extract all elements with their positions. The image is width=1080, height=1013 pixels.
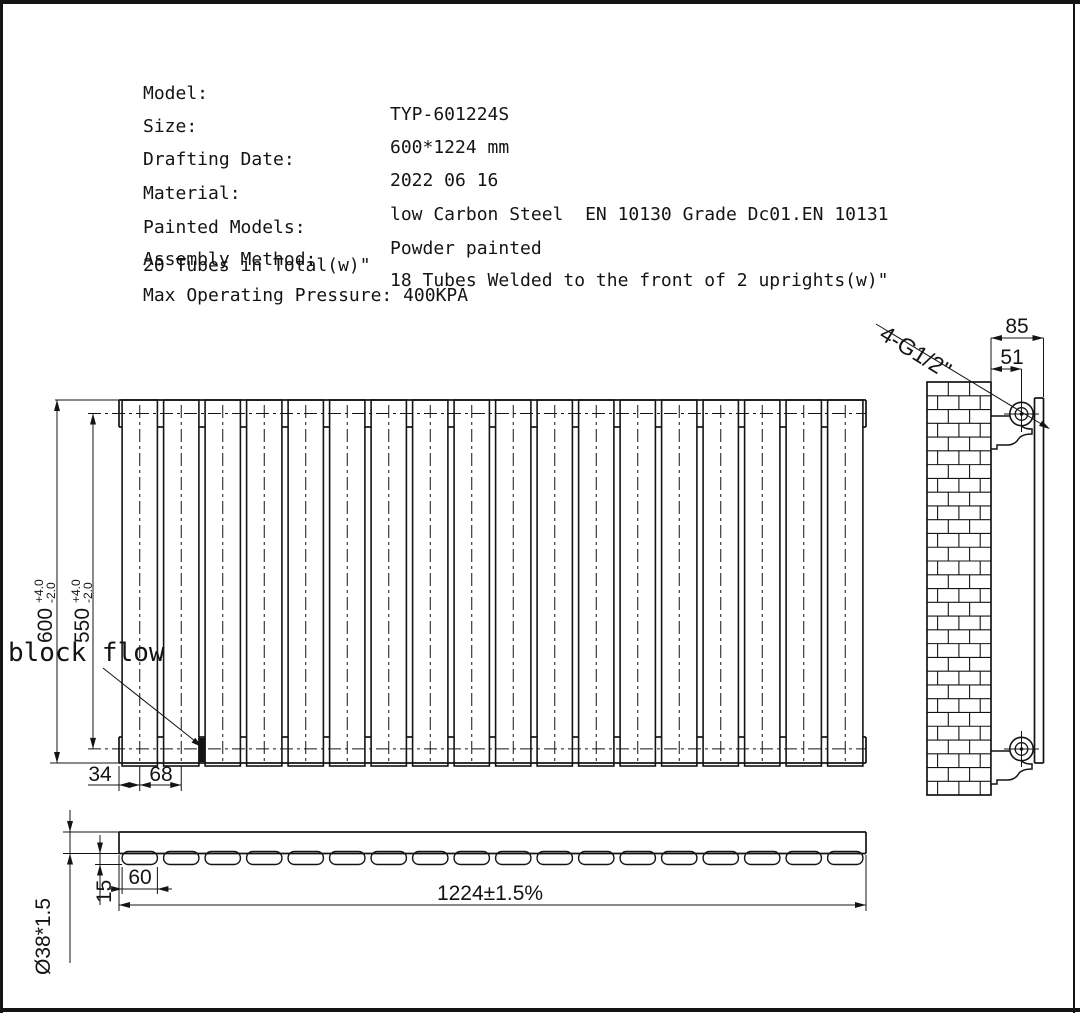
drawing-polygon bbox=[54, 752, 60, 763]
drawing-polygon bbox=[1033, 335, 1044, 341]
drawing-line bbox=[103, 668, 200, 745]
center-height-dim-label: 550 +4.0 -2.0 bbox=[69, 579, 95, 643]
drawing-polygon bbox=[1039, 421, 1052, 432]
tube-width-dim-label: 60 bbox=[128, 866, 151, 889]
edge-dim-label: 34 bbox=[88, 763, 112, 786]
drawing-svg: 600 +4.0 -2.0 550 +4.0 -2.0 block flow 3… bbox=[0, 0, 1080, 1013]
drawing-polygon bbox=[97, 865, 103, 876]
pitch-dim-label: 68 bbox=[149, 763, 172, 786]
drawing-polygon bbox=[67, 854, 73, 865]
drawing-polygon bbox=[90, 738, 96, 749]
drawing-polygon bbox=[67, 821, 73, 832]
drawing-polygon bbox=[97, 843, 103, 854]
upright-tube-dim-label: Ø38*1.5 bbox=[32, 898, 55, 975]
drawing-rect bbox=[199, 738, 205, 762]
drawing-polygon bbox=[119, 902, 130, 908]
height-dim-tol-minus: -2.0 bbox=[44, 582, 58, 603]
wall-to-center-dim-label: 51 bbox=[1000, 346, 1023, 369]
connection-spec-label: 4-G1/2" bbox=[875, 320, 956, 383]
wall-to-front-dim-label: 85 bbox=[1005, 315, 1028, 338]
drawing-polygon bbox=[90, 414, 96, 425]
drawing-polygon bbox=[855, 902, 866, 908]
drawing-polygon bbox=[54, 400, 60, 411]
radiator-technical-drawing: Model: TYP-601224S Size: 600*1224 mm Dra… bbox=[0, 0, 1080, 1013]
bottom-view bbox=[119, 832, 866, 865]
dimension-lines bbox=[50, 324, 1052, 963]
side-view bbox=[927, 382, 1044, 795]
front-view bbox=[88, 400, 866, 766]
drawing-polygon bbox=[119, 782, 130, 788]
drawing-polygon bbox=[157, 886, 168, 892]
tube-depth-dim-label: 15 bbox=[93, 880, 116, 903]
drawing-polygon bbox=[991, 335, 1002, 341]
center-height-tol-minus: -2.0 bbox=[81, 582, 95, 603]
height-dim-label: 600 +4.0 -2.0 bbox=[32, 579, 58, 643]
block-flow-label: block flow bbox=[8, 638, 165, 668]
overall-width-dim-label: 1224±1.5% bbox=[437, 882, 543, 905]
drawing-polygon bbox=[129, 782, 140, 788]
